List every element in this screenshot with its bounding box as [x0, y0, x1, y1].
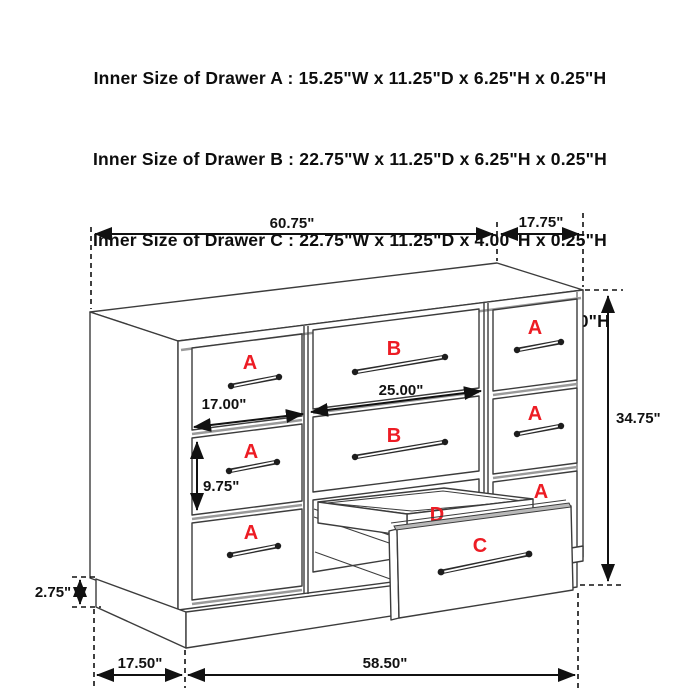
drawer-label-a: A: [243, 352, 257, 374]
dim-top-width-label: 60.75": [270, 215, 315, 232]
dim-base-width-label: 58.50": [363, 655, 408, 672]
drawer-label-a: A: [534, 481, 548, 503]
dim-base-depth-label: 17.50": [118, 655, 163, 672]
drawer-label-a: A: [528, 317, 542, 339]
drawer-label-b: B: [387, 425, 401, 447]
dim-drawer-a-width-label: 17.00": [202, 396, 247, 413]
dim-drawer-b-width-label: 25.00": [379, 382, 424, 399]
drawer-label-b: B: [387, 338, 401, 360]
drawer-label-c: C: [473, 535, 487, 557]
drawer-label-a: A: [244, 441, 258, 463]
drawer-label-a: A: [244, 522, 258, 544]
furniture-dimension-diagram: Inner Size of Drawer A : 15.25"W x 11.25…: [0, 0, 700, 700]
dresser-left-panel: [90, 312, 178, 610]
dresser-line-drawing: A A A B B A A A: [0, 0, 700, 700]
drawer-label-a: A: [528, 403, 542, 425]
dim-top-depth-label: 17.75": [519, 214, 564, 231]
dim-drawer-a-height-label: 9.75": [203, 478, 239, 495]
dim-base-height-label: 2.75": [35, 584, 71, 601]
dim-height-label: 34.75": [616, 410, 661, 427]
